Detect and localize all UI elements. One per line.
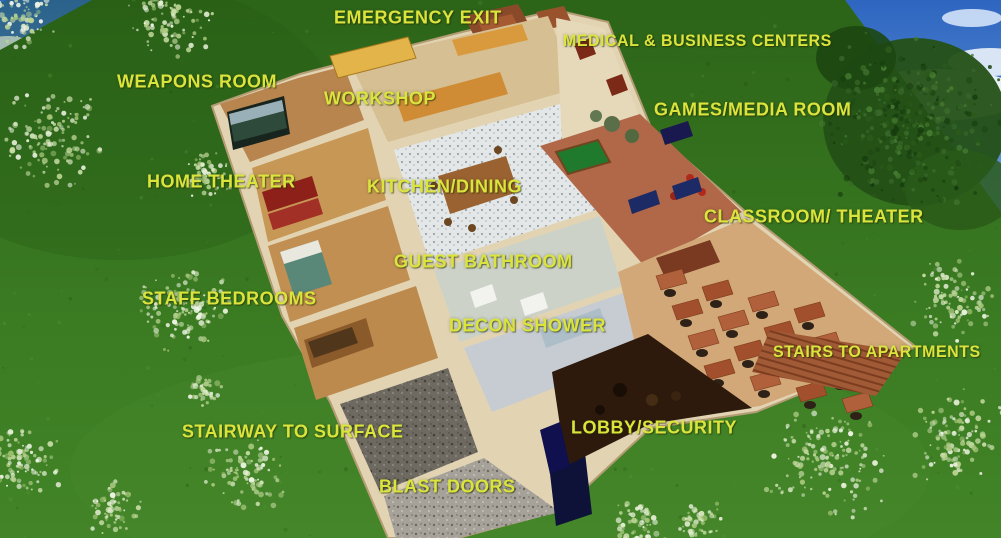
room-label-lobby-security: LOBBY/SECURITY [571,416,737,438]
bunker-floorplan-scene: EMERGENCY EXIT MEDICAL & BUSINESS CENTER… [0,0,1001,538]
room-label-stairway-to-surface: STAIRWAY TO SURFACE [182,420,404,442]
room-label-blast-doors: BLAST DOORS [379,475,516,497]
room-label-weapons-room: WEAPONS ROOM [117,70,277,92]
room-label-games-media-room: GAMES/MEDIA ROOM [654,98,851,120]
room-label-stairs-to-apartments: STAIRS TO APARTMENTS [773,344,981,363]
room-label-guest-bathroom: GUEST BATHROOM [394,250,573,272]
room-label-medical-business-centers: MEDICAL & BUSINESS CENTERS [563,33,832,52]
room-label-workshop: WORKSHOP [324,87,436,109]
room-label-kitchen-dining: KITCHEN/DINING [367,175,522,197]
room-label-home-theater: HOME THEATER [147,170,296,192]
room-labels: EMERGENCY EXIT MEDICAL & BUSINESS CENTER… [0,0,1001,538]
room-label-staff-bedrooms: STAFF BEDROOMS [142,287,317,309]
room-label-classroom-theater: CLASSROOM/ THEATER [704,205,924,227]
room-label-emergency-exit: EMERGENCY EXIT [334,6,502,28]
room-label-decon-shower: DECON SHOWER [449,314,606,336]
